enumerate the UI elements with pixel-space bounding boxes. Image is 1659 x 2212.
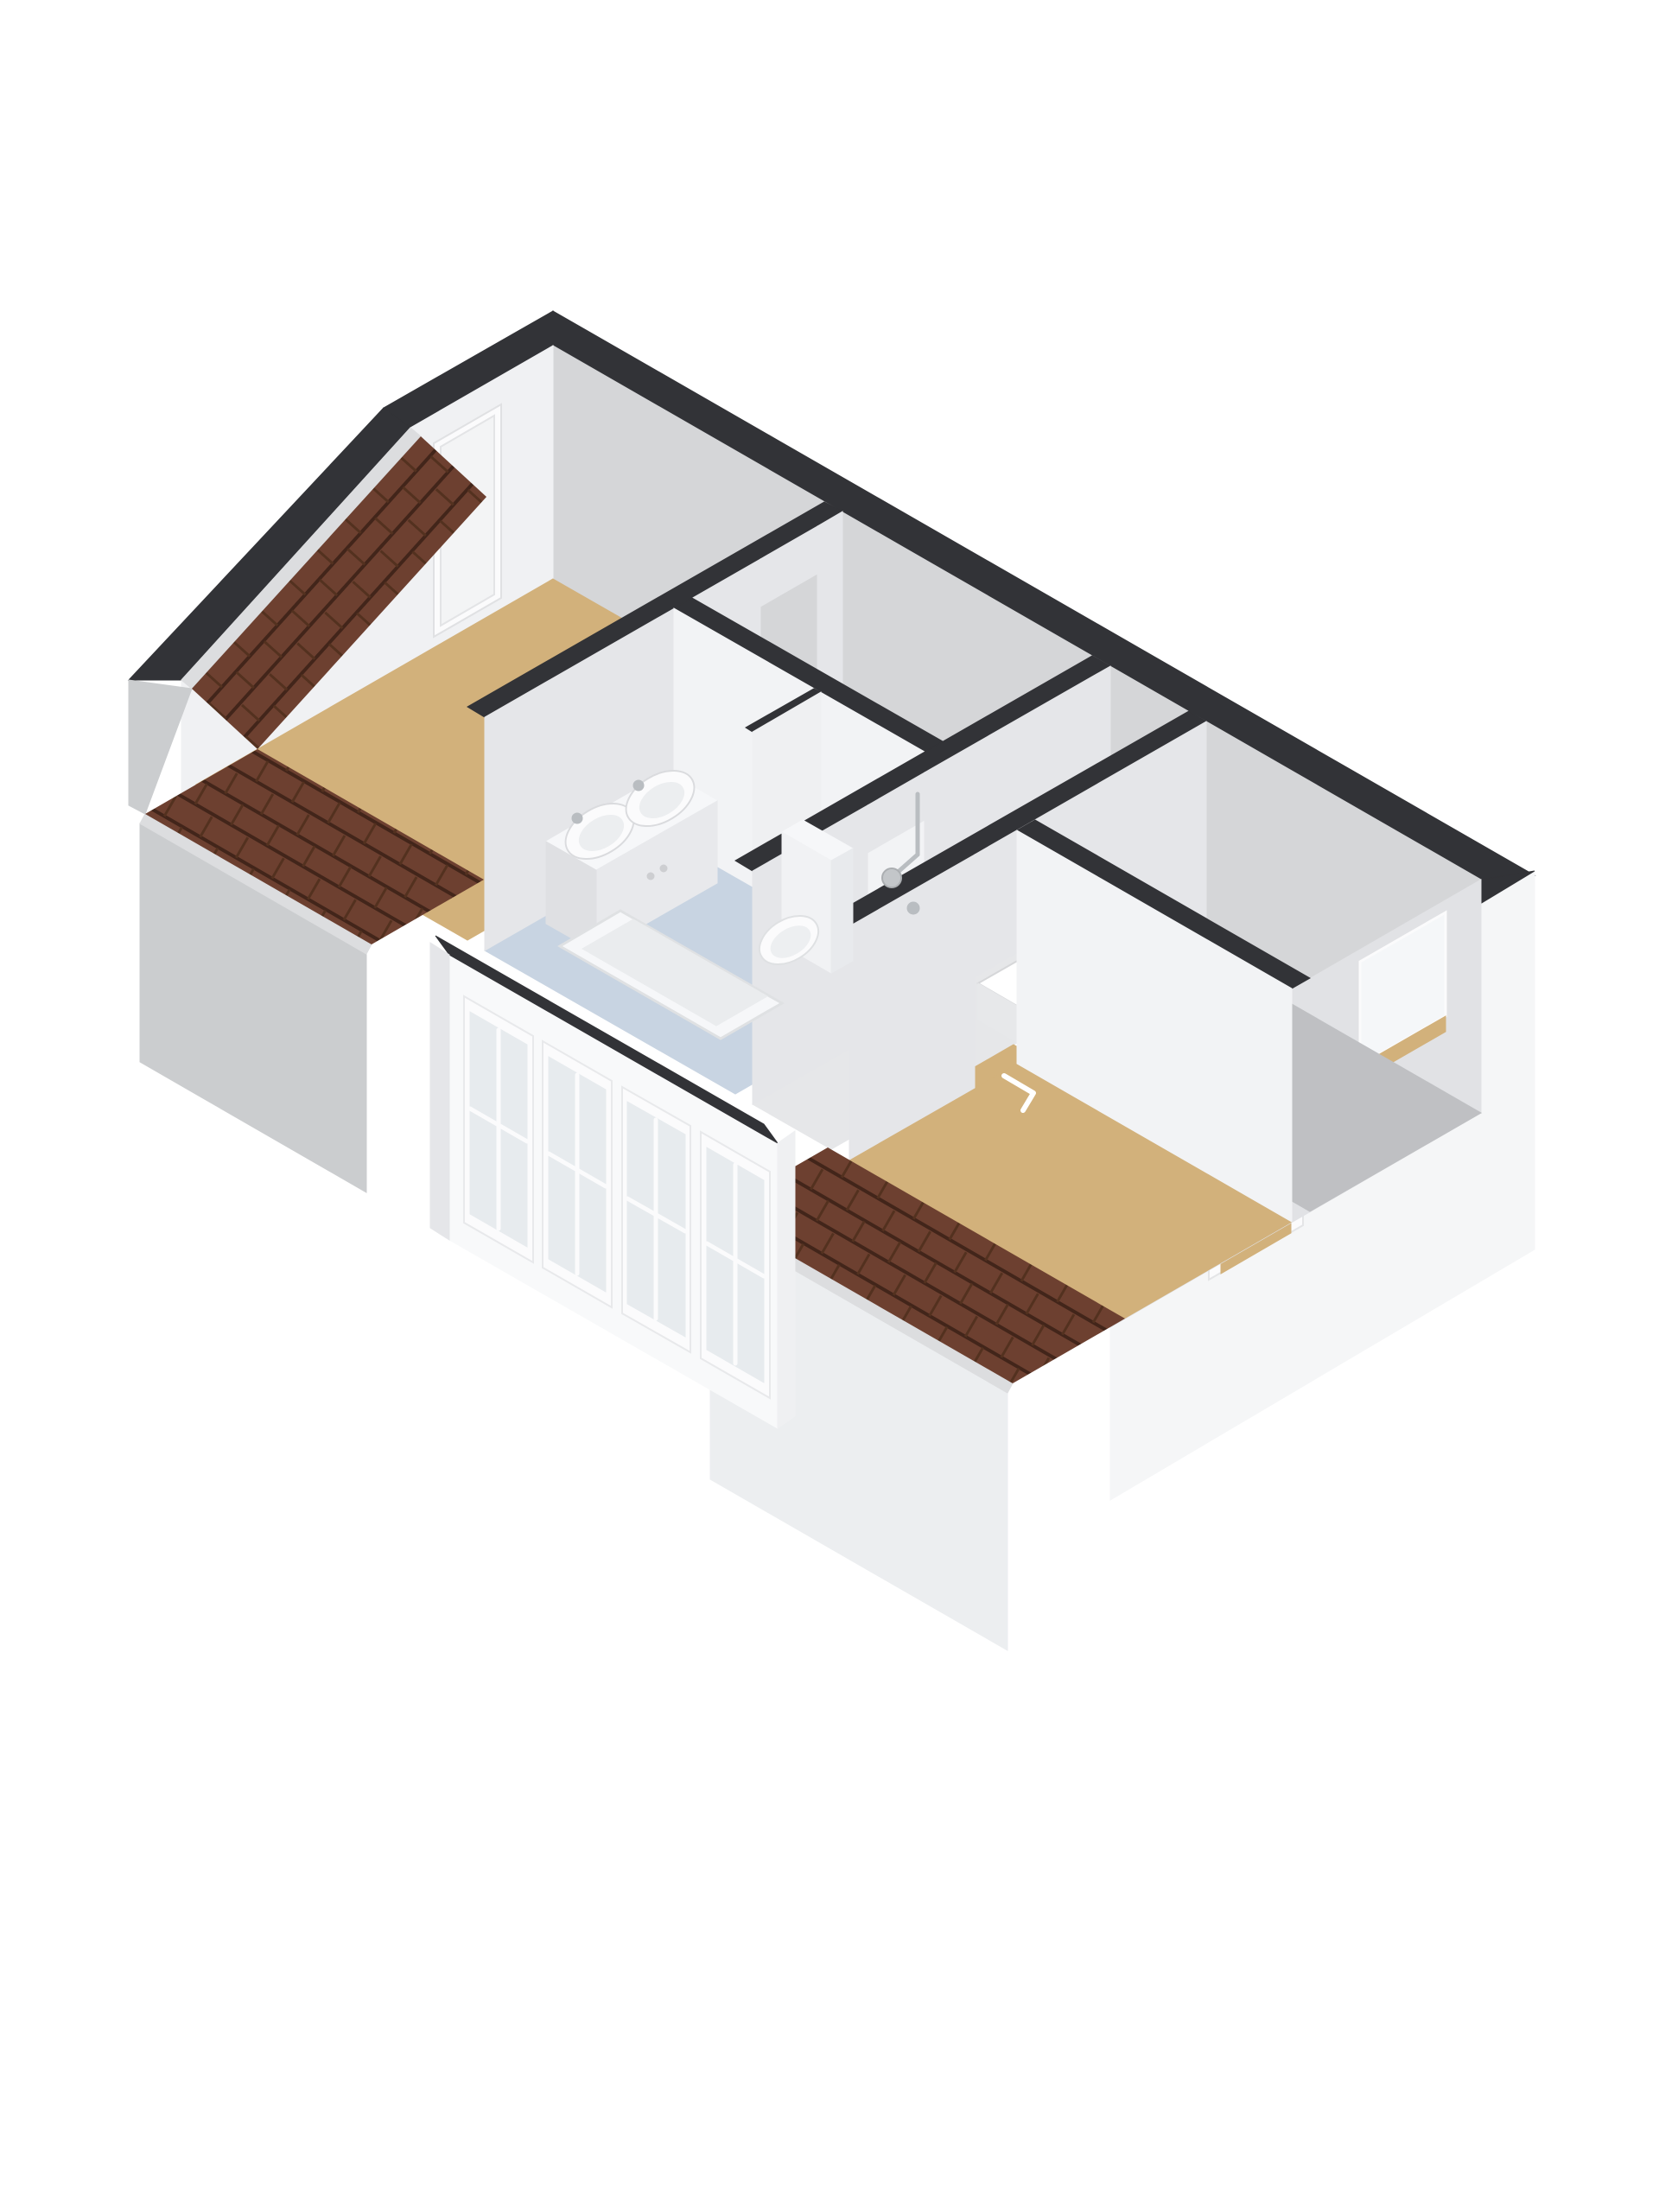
tap-1 (633, 780, 644, 791)
dormer-left-return (430, 943, 449, 1240)
vanity-handle-2 (660, 865, 667, 872)
shower-head (882, 868, 901, 887)
dormer-right-return (778, 1131, 795, 1428)
cistern-side (831, 849, 853, 973)
floorplan-stage (0, 0, 1659, 2212)
shower-mixer (907, 902, 919, 914)
tap-2 (572, 813, 582, 823)
floorplan-3d-render (0, 0, 1659, 2212)
vanity-handle-1 (647, 873, 654, 880)
